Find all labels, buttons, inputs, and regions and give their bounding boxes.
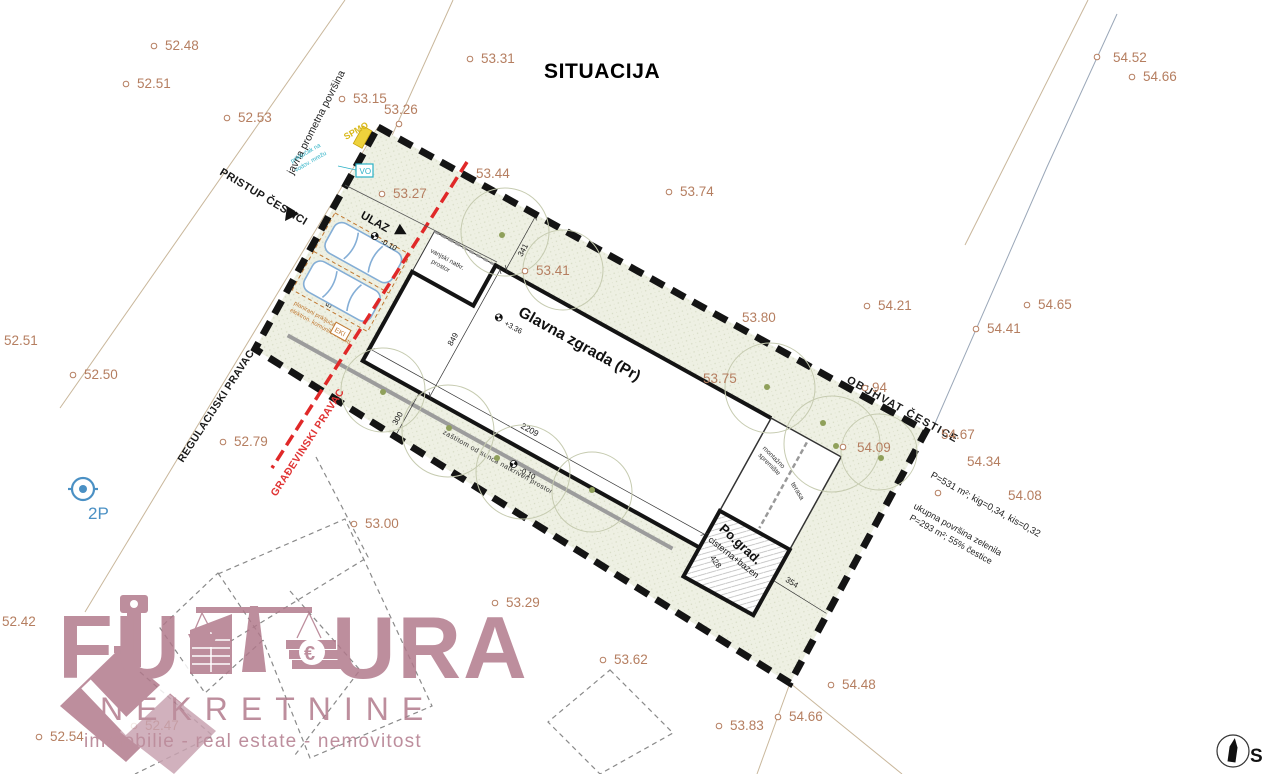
spot-elevation: 53.00: [351, 516, 399, 531]
svg-text:52.51: 52.51: [4, 333, 38, 348]
spot-elevation: 54.52: [1094, 50, 1147, 65]
spot-elevation: 54.48: [828, 677, 876, 692]
spot-elevation: 54.08: [1008, 488, 1042, 503]
logo-word-fu: FU: [58, 598, 182, 698]
spot-elevation: 52.50: [70, 367, 118, 382]
svg-text:53.80: 53.80: [742, 310, 776, 325]
stats-line-1: P=531 m²; kig=0,34, kis=0,32: [929, 470, 1043, 540]
spot-elevation: 53.75: [703, 371, 737, 386]
spot-elevation: 53.80: [742, 310, 776, 325]
svg-text:52.42: 52.42: [2, 614, 36, 629]
svg-text:52.54: 52.54: [50, 729, 84, 744]
svg-text:54.21: 54.21: [878, 298, 912, 313]
spot-elevation: 54.66: [1129, 69, 1177, 84]
spot-elevation: 53.62: [600, 652, 648, 667]
logo-word-nekretnine: NEKRETNINE: [100, 691, 436, 727]
north-arrow: S: [1217, 735, 1263, 767]
svg-text:54.09: 54.09: [857, 440, 891, 455]
svg-text:54.67: 54.67: [941, 427, 975, 442]
spot-elevation: 52.54: [36, 729, 84, 744]
spot-elevation: 54.66: [775, 709, 823, 724]
svg-text:52.79: 52.79: [234, 434, 268, 449]
svg-text:53.26: 53.26: [384, 102, 418, 117]
spot-elevation: 53.44: [476, 166, 510, 181]
spot-elevation: 52.51: [123, 76, 171, 91]
svg-text:52.50: 52.50: [84, 367, 118, 382]
spot-elevation: 52.53: [224, 110, 272, 125]
svg-text:54.65: 54.65: [1038, 297, 1072, 312]
svg-text:53.75: 53.75: [703, 371, 737, 386]
euro-icon: €: [304, 643, 315, 665]
spot-elevation: 54.65: [1024, 297, 1072, 312]
plot-statistics: P=531 m²; kig=0,34, kis=0,32 ukupna povr…: [906, 470, 1042, 568]
spot-elevation: 54.21: [864, 298, 912, 313]
svg-text:54.08: 54.08: [1008, 488, 1042, 503]
svg-text:53.44: 53.44: [476, 166, 510, 181]
svg-text:53.15: 53.15: [353, 91, 387, 106]
logo-futura: FU € URA NEKRETNINE immobilie - real est…: [58, 595, 529, 774]
north-label: S: [1250, 746, 1263, 767]
spot-elevation: 52.79: [220, 434, 268, 449]
logo-word-ura: URA: [332, 598, 529, 697]
svg-text:53.74: 53.74: [680, 184, 714, 199]
building-line-label: GRAĐEVINSKI PRAVAC: [268, 387, 347, 499]
spot-elevation: 54.34: [967, 454, 1001, 469]
shaft-marker: 2P: [68, 478, 109, 523]
spot-elevation: 53.74: [666, 184, 714, 199]
spot-elevation: 52.51: [4, 333, 38, 348]
svg-text:54.66: 54.66: [1143, 69, 1177, 84]
spot-elevation: 53.26: [384, 102, 418, 127]
spot-elevation: 52.42: [2, 614, 36, 629]
spot-elevation: 53.83: [716, 718, 764, 733]
svg-text:52.53: 52.53: [238, 110, 272, 125]
shaft-label: 2P: [88, 504, 109, 523]
spot-elevation: 54.67: [941, 427, 975, 442]
spot-elevation: 53.31: [467, 51, 515, 66]
spot-elevation: 54.41: [973, 321, 1021, 336]
svg-text:54.34: 54.34: [967, 454, 1001, 469]
logo-tagline: immobilie - real estate - nemovitost: [84, 731, 422, 752]
site-plan-canvas: vanjski natkr. prostor montažno spremišt…: [0, 0, 1271, 774]
svg-text:54.48: 54.48: [842, 677, 876, 692]
spot-marker: [935, 490, 941, 496]
svg-text:53.27: 53.27: [393, 186, 427, 201]
page-title: SITUACIJA: [544, 60, 660, 83]
spot-elevation: 52.48: [151, 38, 199, 53]
svg-text:52.48: 52.48: [165, 38, 199, 53]
svg-text:52.51: 52.51: [137, 76, 171, 91]
svg-text:53.31: 53.31: [481, 51, 515, 66]
svg-text:53.41: 53.41: [536, 263, 570, 278]
svg-text:53.83: 53.83: [730, 718, 764, 733]
svg-text:94: 94: [872, 380, 888, 395]
water-box-label: VO: [360, 167, 372, 176]
svg-text:54.52: 54.52: [1113, 50, 1147, 65]
site-plan-drawing: vanjski natkr. prostor montažno spremišt…: [0, 0, 1271, 774]
svg-text:54.41: 54.41: [987, 321, 1021, 336]
fence-line: [933, 14, 1117, 428]
svg-text:53.00: 53.00: [365, 516, 399, 531]
svg-text:53.62: 53.62: [614, 652, 648, 667]
north-needle-icon: [1228, 738, 1239, 763]
spot-elevation: 53.15: [339, 91, 387, 106]
svg-text:54.66: 54.66: [789, 709, 823, 724]
